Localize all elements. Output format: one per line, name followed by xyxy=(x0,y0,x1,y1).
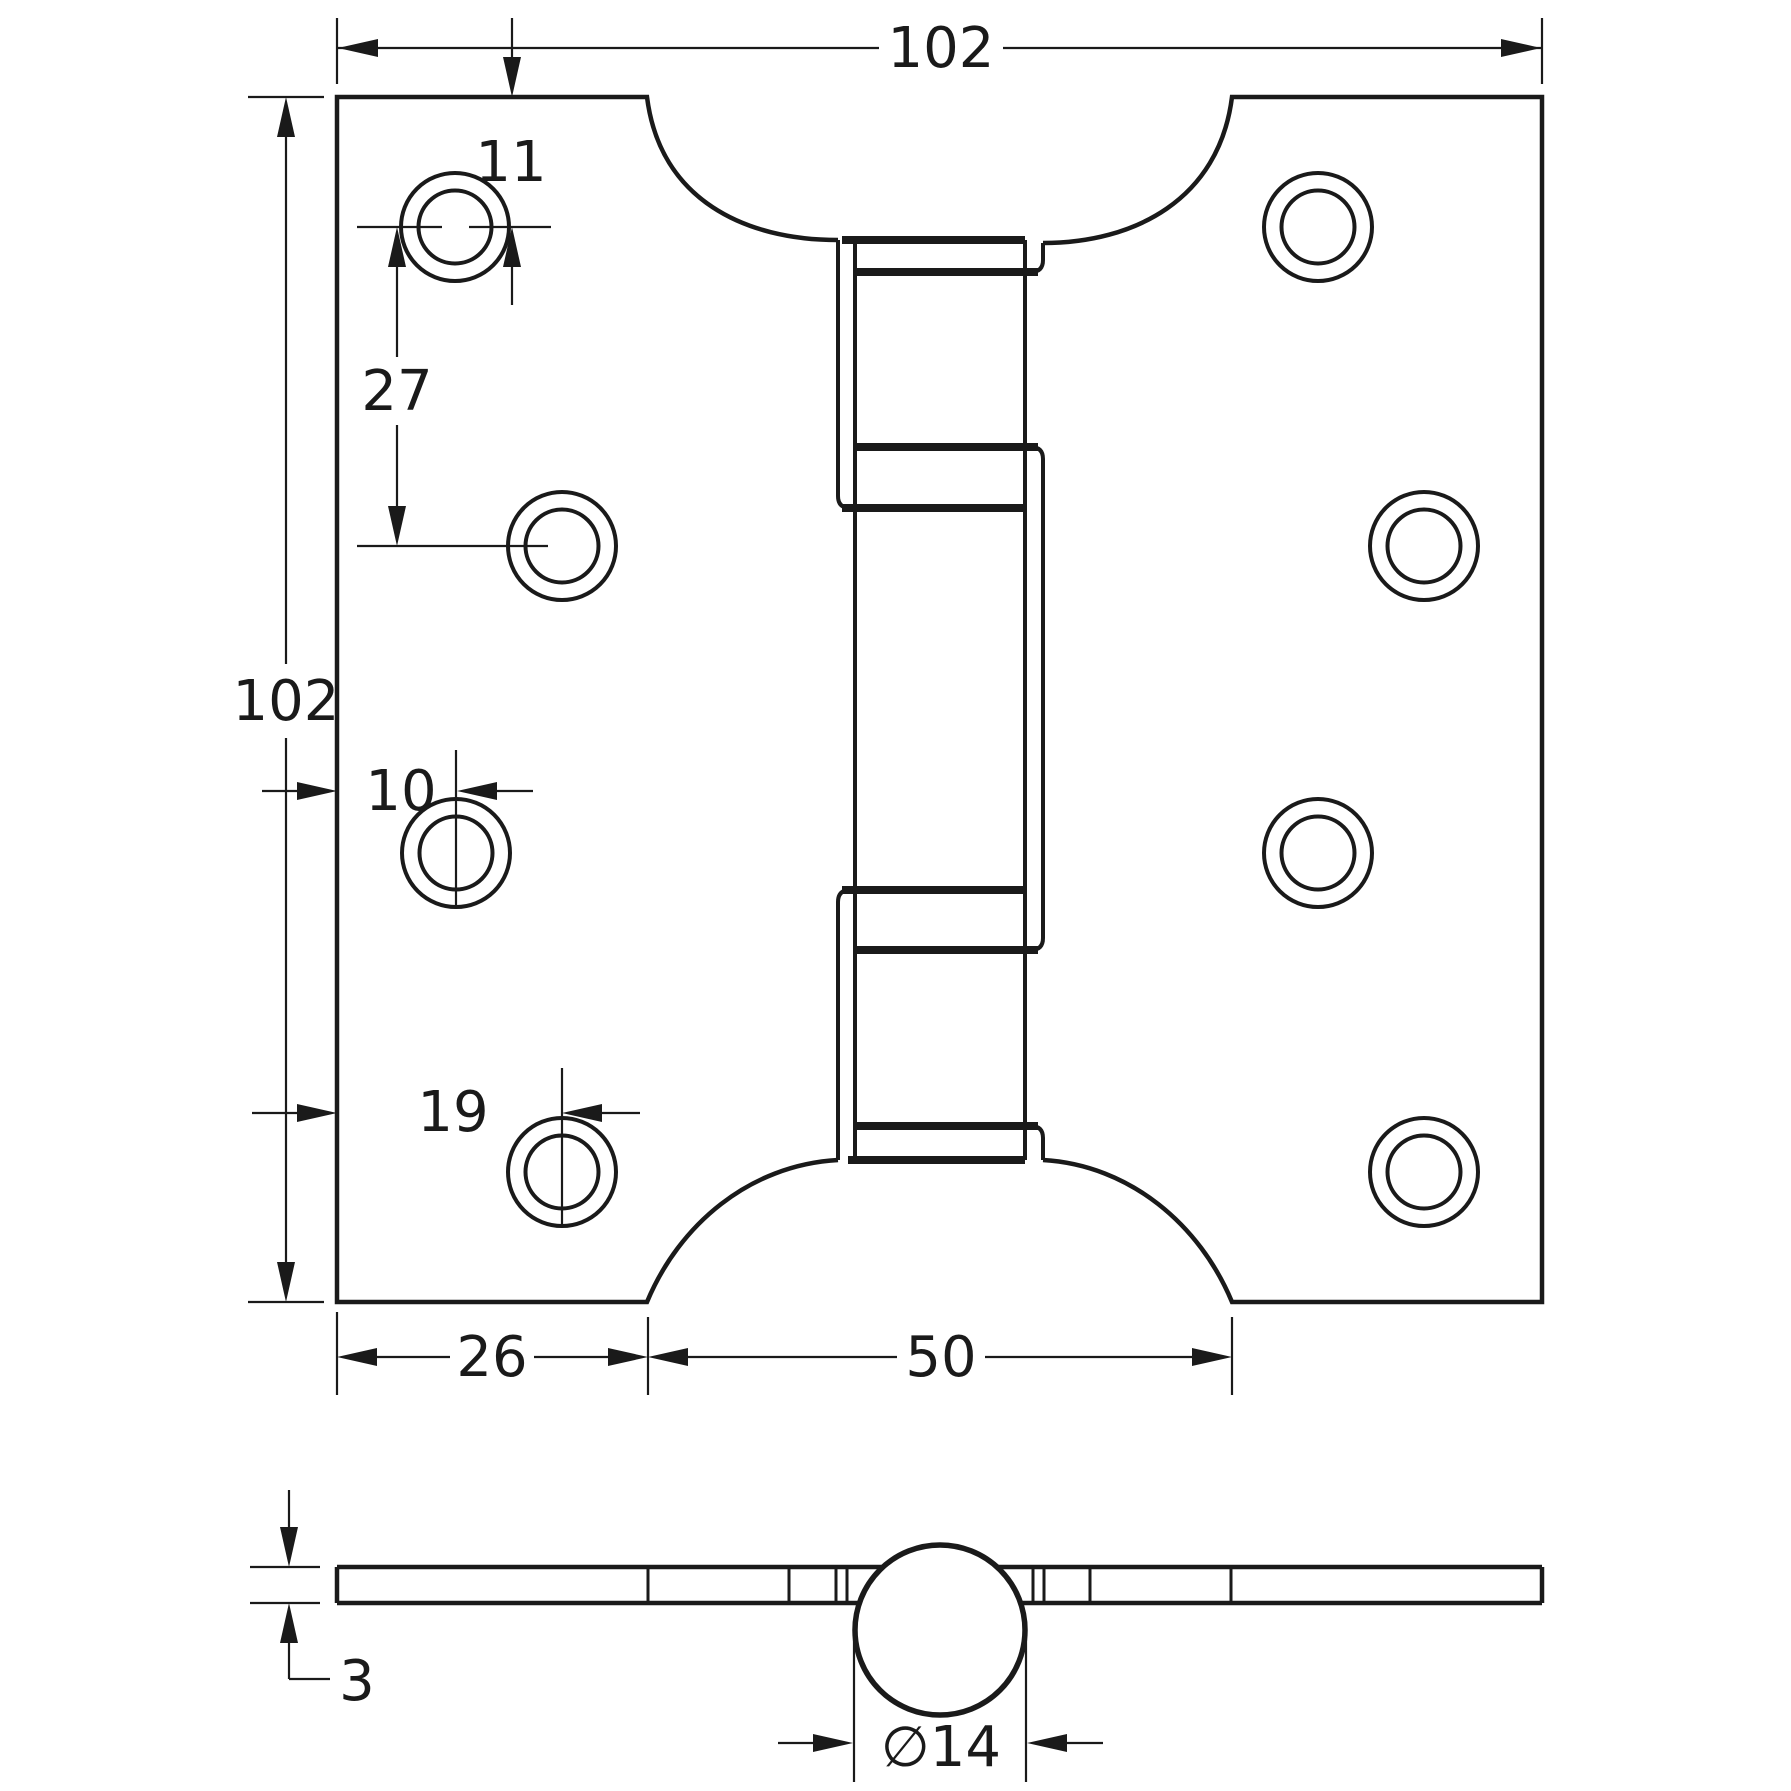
screw-hole-inner xyxy=(1282,191,1355,264)
dim-hole-spacing: 27 xyxy=(361,227,432,546)
arrowhead-up xyxy=(280,1603,298,1643)
arrowhead-right xyxy=(1192,1348,1232,1366)
section-view: 3 ∅14 xyxy=(250,1490,1542,1782)
knuckle-joint-bands xyxy=(842,240,1038,1160)
left-leaf-curl-line xyxy=(838,240,850,1160)
screw-hole-inner xyxy=(1388,1136,1461,1209)
dim-knuckle-diameter: ∅14 xyxy=(778,1632,1103,1782)
hinge-technical-drawing: 102 102 11 27 10 xyxy=(0,0,1791,1791)
arrowhead-down xyxy=(388,506,406,546)
dim-label-hole-offset-top: 11 xyxy=(475,130,546,195)
dim-bottom-chain: 26 50 xyxy=(337,1312,1232,1395)
dim-label-leaf-width: 26 xyxy=(456,1325,527,1390)
arrowhead-right xyxy=(297,782,337,800)
leaf-bar-outline xyxy=(337,1567,1542,1603)
dim-label-knuckle-diameter: ∅14 xyxy=(881,1715,1001,1780)
arrowhead-right xyxy=(813,1734,853,1752)
arrowhead-left xyxy=(648,1348,688,1366)
arrowhead-left xyxy=(337,1348,377,1366)
screw-hole-inner xyxy=(1282,817,1355,890)
arrowhead-down xyxy=(503,57,521,97)
arrowhead-left xyxy=(1027,1734,1067,1752)
arrowhead-down xyxy=(280,1527,298,1567)
dim-lines xyxy=(250,1490,330,1679)
drawing-page: 102 102 11 27 10 xyxy=(0,0,1791,1791)
right-leaf-outline xyxy=(1043,97,1542,1302)
dim-label-hole-spacing: 27 xyxy=(361,359,432,424)
screw-hole-inner xyxy=(1388,510,1461,583)
left-leaf-outline xyxy=(337,97,838,1302)
arrowhead-right xyxy=(608,1348,648,1366)
dim-label-hole-col-b: 19 xyxy=(417,1080,488,1145)
right-leaf-curl-line xyxy=(1031,243,1043,1160)
arrowhead-right xyxy=(297,1104,337,1122)
front-view: 102 102 11 27 10 xyxy=(233,16,1542,1395)
dim-overall-height: 102 xyxy=(233,97,340,1302)
dim-hole-offset-top: 11 xyxy=(475,18,546,305)
arrowhead-right xyxy=(1501,39,1541,57)
arrowhead-up xyxy=(277,97,295,137)
dim-overall-width: 102 xyxy=(337,16,1542,84)
dim-label-thickness: 3 xyxy=(339,1649,375,1714)
pin-barrel-lines xyxy=(855,240,1025,1160)
dim-label-cutout-width: 50 xyxy=(905,1325,976,1390)
arrowhead-left xyxy=(457,782,497,800)
arrowhead-down xyxy=(277,1262,295,1302)
arrowhead-left xyxy=(338,39,378,57)
dim-label-hole-col-a: 10 xyxy=(365,759,436,824)
dim-label-overall-width: 102 xyxy=(888,16,995,81)
dim-label-overall-height: 102 xyxy=(233,669,340,734)
dim-hole-col-b: 19 xyxy=(252,1080,640,1145)
knuckle xyxy=(838,240,1043,1160)
knuckle-ticks xyxy=(648,1567,1231,1603)
knuckle-circle xyxy=(855,1545,1025,1715)
